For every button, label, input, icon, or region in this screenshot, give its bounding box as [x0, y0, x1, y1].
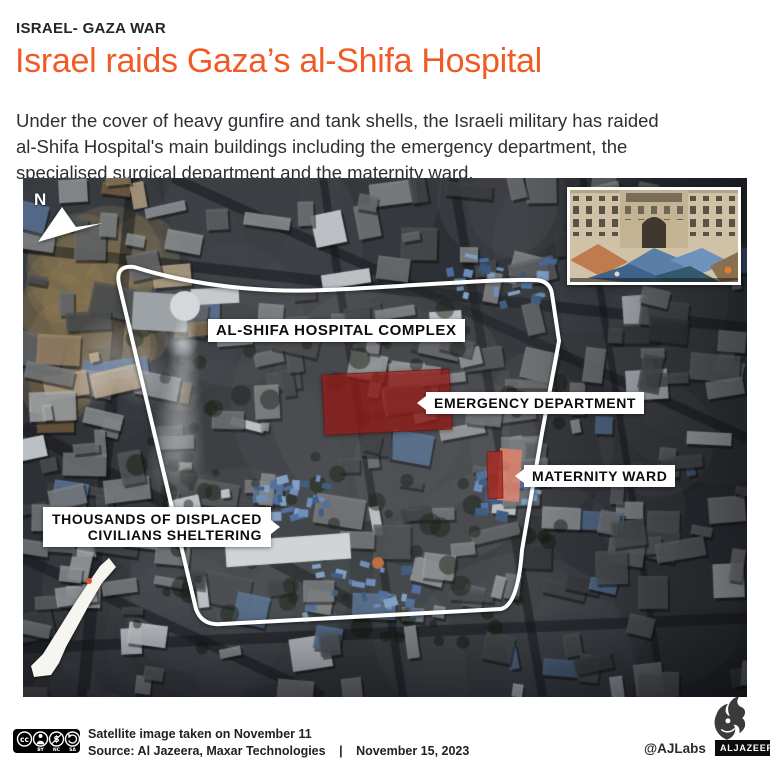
label-text: EMERGENCY DEPARTMENT	[434, 395, 636, 411]
maternity-ward-highlight-dark	[487, 451, 503, 499]
separator: |	[339, 744, 343, 758]
satellite-map: N	[23, 178, 747, 697]
north-label: N	[34, 190, 46, 210]
label-text: THOUSANDS OF DISPLACED	[52, 511, 262, 527]
page-title: Israel raids Gaza’s al-Shifa Hospital	[15, 42, 542, 81]
label-text: MATERNITY WARD	[532, 468, 667, 484]
ajlabs-handle: @AJLabs	[644, 741, 706, 756]
pointer-right-icon	[271, 520, 280, 534]
label-text: CIVILIANS SHELTERING	[52, 527, 262, 543]
inset-photo-art	[570, 190, 738, 282]
al-jazeera-logo-icon	[708, 695, 746, 746]
description-line: al-Shifa Hospital's main buildings inclu…	[16, 134, 659, 160]
svg-text:NC: NC	[53, 747, 61, 753]
caption: Satellite image taken on November 11 Sou…	[88, 726, 469, 760]
pointer-left-icon	[515, 469, 524, 483]
infographic-page: ISRAEL- GAZA WAR Israel raids Gaza’s al-…	[0, 0, 770, 770]
svg-text:BY: BY	[37, 747, 44, 753]
date-text: November 15, 2023	[356, 744, 469, 758]
svg-text:cc: cc	[20, 735, 29, 744]
source-text: Source: Al Jazeera, Maxar Technologies	[88, 744, 326, 758]
label-emergency-department: EMERGENCY DEPARTMENT	[426, 392, 644, 414]
description: Under the cover of heavy gunfire and tan…	[16, 108, 659, 186]
label-maternity-ward: MATERNITY WARD	[524, 465, 675, 487]
north-arrow-icon	[38, 207, 103, 242]
kicker: ISRAEL- GAZA WAR	[16, 20, 166, 37]
inset-photo	[567, 187, 741, 285]
label-hospital-complex: AL-SHIFA HOSPITAL COMPLEX	[208, 319, 465, 342]
caption-line1: Satellite image taken on November 11	[88, 726, 469, 743]
label-text: AL-SHIFA HOSPITAL COMPLEX	[216, 322, 457, 339]
gaza-strip-locator-map	[31, 558, 116, 677]
pointer-left-icon	[417, 396, 426, 410]
description-line: Under the cover of heavy gunfire and tan…	[16, 108, 659, 134]
creative-commons-badge: cc $ BY NC SA	[13, 729, 80, 758]
location-marker	[86, 578, 92, 584]
al-jazeera-wordmark: ALJAZEERA	[715, 740, 770, 756]
label-displaced-civilians: THOUSANDS OF DISPLACED CIVILIANS SHELTER…	[43, 507, 271, 547]
brand: @AJLabs ALJAZEERA	[644, 740, 770, 756]
svg-text:SA: SA	[69, 747, 76, 753]
caption-line2: Source: Al Jazeera, Maxar Technologies |…	[88, 743, 469, 760]
